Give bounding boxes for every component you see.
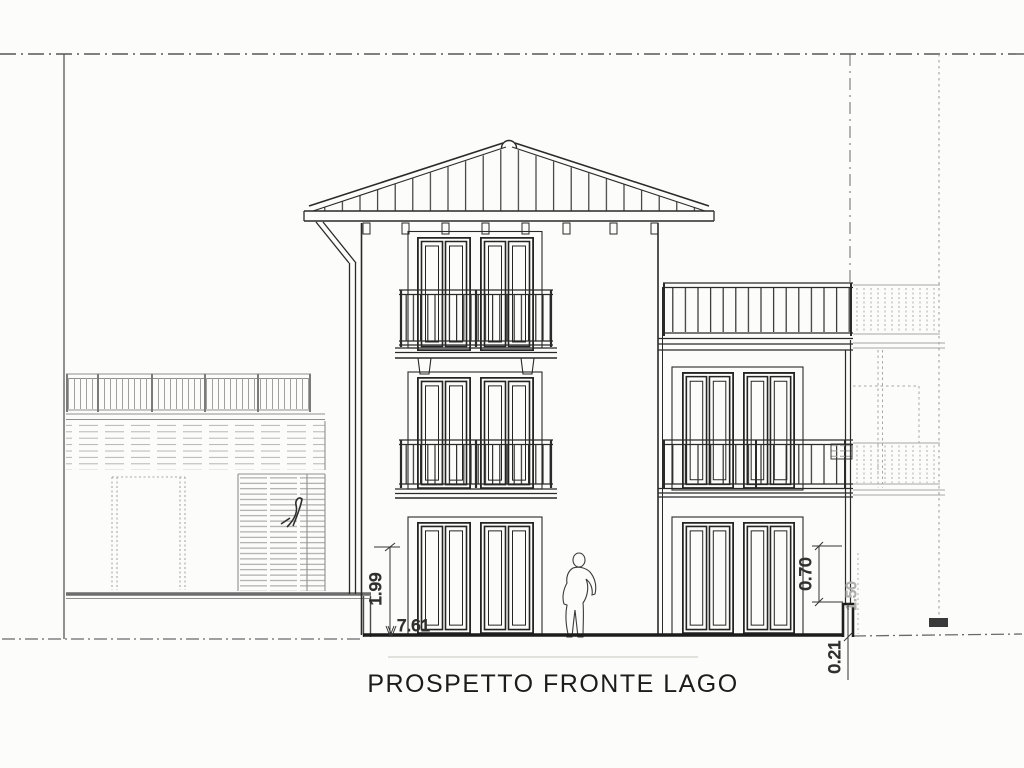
dim-label-1-99: 1.99 — [366, 572, 385, 605]
bg-right-upper-railing — [853, 285, 945, 348]
annex-section-cut — [831, 444, 852, 459]
roof-standing-seams — [316, 147, 702, 211]
hip-roof — [304, 141, 714, 235]
neighbor-lower-hatch-block — [238, 474, 325, 591]
annex-balcony — [658, 440, 853, 497]
dimensions: 1.99 7.61 0.70 1.50 0.21 — [366, 542, 860, 680]
dim-label-1-50: 1.50 — [843, 581, 860, 610]
annex-fascia — [658, 339, 853, 351]
person-head — [573, 553, 585, 567]
main-tower — [304, 141, 714, 636]
annex-right-wall — [846, 340, 851, 603]
dim-curb-right: 0.21 — [825, 603, 852, 680]
eaves-brackets — [363, 223, 658, 234]
neighbor-slab — [66, 414, 325, 420]
person-body — [563, 567, 596, 637]
boundary-foot-block — [929, 618, 948, 627]
annex-ground-door-pair-right — [744, 523, 794, 633]
annex-roof-railing — [663, 283, 853, 336]
scale-figure — [563, 553, 596, 637]
ground — [363, 635, 843, 657]
dim-label-0-70: 0.70 — [796, 557, 815, 590]
annex-ground-door-pair-left — [683, 523, 733, 633]
dim-label-7-61: 7.61 — [397, 616, 430, 635]
annex-wing — [658, 283, 853, 637]
dim-label-0-21: 0.21 — [825, 640, 844, 673]
neighbor-lower-openings — [112, 477, 185, 590]
neighbor-roof-railing — [66, 374, 311, 412]
drawing-title: PROSPETTO FRONTE LAGO — [367, 670, 738, 698]
tower-f3-balcony — [395, 290, 557, 374]
neighbor-building-left — [66, 374, 371, 637]
annex-ground-opening — [672, 517, 803, 635]
ground-line-right-dashdot — [853, 634, 1022, 636]
scanned-elevation-sheet: 1.99 7.61 0.70 1.50 0.21 PROSPETTO FRONT… — [0, 0, 1024, 768]
background-building-right — [853, 285, 945, 495]
tower-f2-balcony — [395, 440, 557, 498]
bg-right-lower-railing — [853, 443, 945, 495]
eaves-fascia — [304, 211, 714, 221]
dim-width-bottom: 7.61 — [388, 616, 430, 636]
roof-finial — [502, 141, 517, 149]
neighbor-siding-hatch — [66, 421, 325, 470]
elevation-drawing: 1.99 7.61 0.70 1.50 0.21 PROSPETTO FRONT… — [0, 0, 1024, 768]
tower-ground-door-pair-right — [481, 523, 533, 633]
neighbor-terrace-edge — [66, 594, 371, 637]
